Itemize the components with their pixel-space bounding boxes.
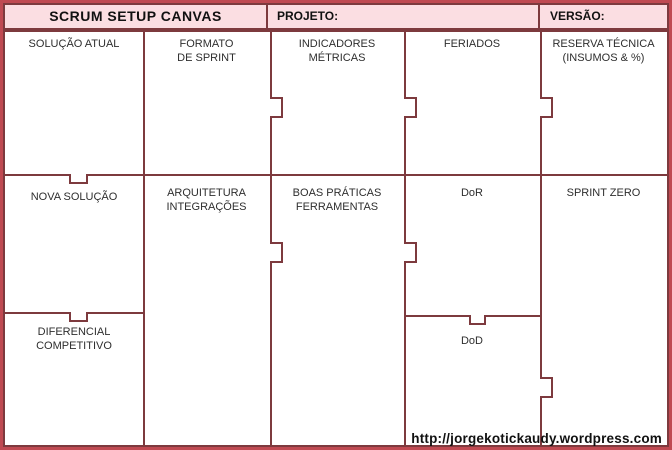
puzzle-tab-icon: [540, 377, 553, 398]
puzzle-tab-icon: [540, 97, 553, 118]
cell-label-dod: DoD: [404, 334, 540, 348]
puzzle-tab-icon: [404, 242, 417, 263]
page-title: SCRUM SETUP CANVAS: [5, 5, 266, 28]
header-band: SCRUM SETUP CANVAS PROJETO: VERSÃO:: [3, 3, 669, 30]
scrum-setup-canvas: SCRUM SETUP CANVAS PROJETO: VERSÃO: SOLU…: [0, 0, 672, 450]
header-divider-2: [538, 5, 540, 28]
puzzle-tab-icon: [69, 174, 88, 184]
canvas-inner: SCRUM SETUP CANVAS PROJETO: VERSÃO: SOLU…: [3, 3, 669, 447]
puzzle-tab-icon: [469, 315, 486, 325]
cell-label-boas-praticas-ferramentas: BOAS PRÁTICAS FERRAMENTAS: [270, 186, 404, 214]
column-line-1: [143, 32, 145, 445]
footer-url-link[interactable]: http://jorgekotickaudy.wordpress.com: [411, 431, 662, 446]
projeto-label: PROJETO:: [277, 5, 338, 28]
versao-label: VERSÃO:: [550, 5, 605, 28]
column-line-2: [270, 32, 272, 445]
header-divider-1: [266, 5, 268, 28]
cell-label-solucao-atual: SOLUÇÃO ATUAL: [5, 37, 143, 51]
grid-frame: [3, 30, 669, 447]
cell-label-reserva-tecnica: RESERVA TÉCNICA (INSUMOS & %): [540, 37, 667, 65]
cell-label-dor: DoR: [404, 186, 540, 200]
cell-label-feriados: FERIADOS: [404, 37, 540, 51]
cell-label-indicadores-metricas: INDICADORES MÉTRICAS: [270, 37, 404, 65]
cell-label-diferencial-competitivo: DIFERENCIAL COMPETITIVO: [5, 325, 143, 353]
column-line-3: [404, 32, 406, 445]
cell-label-sprint-zero: SPRINT ZERO: [540, 186, 667, 200]
cell-label-arquitetura-integracoes: ARQUITETURA INTEGRAÇÕES: [143, 186, 270, 214]
puzzle-tab-icon: [404, 97, 417, 118]
cell-label-formato-de-sprint: FORMATO DE SPRINT: [143, 37, 270, 65]
cell-label-nova-solucao: NOVA SOLUÇÃO: [5, 190, 143, 204]
row-line-1: [5, 174, 667, 176]
puzzle-tab-icon: [270, 242, 283, 263]
puzzle-tab-icon: [69, 312, 88, 322]
puzzle-tab-icon: [270, 97, 283, 118]
